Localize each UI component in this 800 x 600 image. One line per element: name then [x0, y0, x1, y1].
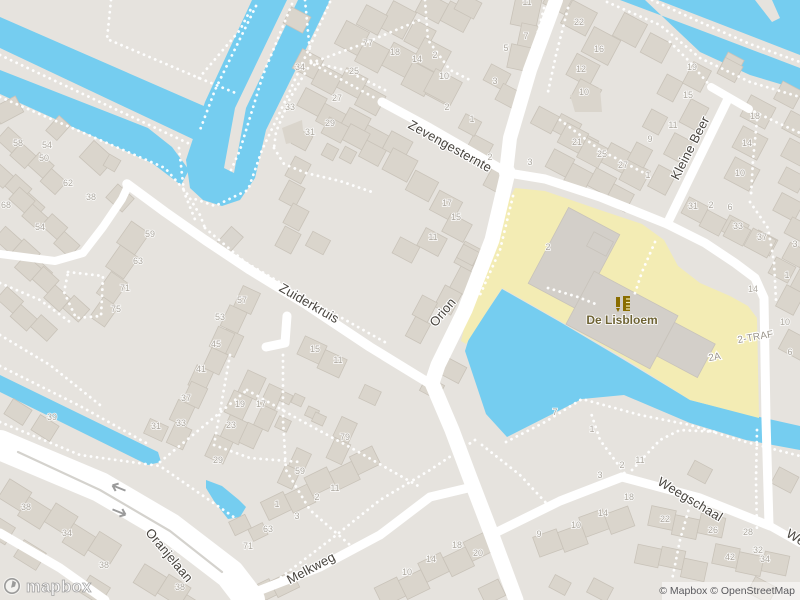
svg-text:34: 34 [62, 528, 72, 538]
svg-text:77: 77 [363, 38, 373, 48]
svg-text:79: 79 [340, 432, 350, 442]
svg-text:31: 31 [305, 127, 315, 137]
svg-text:59: 59 [145, 229, 155, 239]
svg-text:71: 71 [120, 283, 130, 293]
svg-text:33: 33 [176, 418, 186, 428]
svg-text:3: 3 [294, 511, 299, 521]
svg-text:10: 10 [439, 71, 449, 81]
svg-text:18: 18 [390, 47, 400, 57]
svg-text:38: 38 [86, 192, 96, 202]
svg-text:19: 19 [687, 62, 697, 72]
svg-text:De Lisbloem: De Lisbloem [586, 313, 657, 327]
svg-text:37: 37 [181, 393, 191, 403]
svg-text:11: 11 [635, 455, 644, 465]
svg-text:25: 25 [597, 149, 607, 159]
svg-text:7: 7 [523, 31, 528, 41]
svg-text:25: 25 [349, 66, 359, 76]
svg-text:38: 38 [99, 560, 109, 570]
svg-text:14: 14 [426, 554, 436, 564]
svg-text:7: 7 [552, 407, 557, 417]
svg-text:9: 9 [647, 134, 652, 144]
svg-text:26: 26 [708, 525, 718, 535]
svg-text:54: 54 [35, 222, 45, 232]
svg-text:1: 1 [645, 170, 650, 180]
svg-text:11: 11 [668, 120, 677, 130]
svg-text:53: 53 [215, 312, 225, 322]
svg-text:2: 2 [619, 460, 624, 470]
svg-text:37: 37 [757, 232, 767, 242]
svg-text:10: 10 [571, 520, 581, 530]
svg-text:9: 9 [536, 529, 541, 539]
svg-text:2A: 2A [708, 351, 722, 364]
svg-text:1: 1 [469, 114, 474, 124]
svg-text:1: 1 [589, 424, 594, 434]
svg-text:1: 1 [784, 270, 789, 280]
svg-text:11: 11 [428, 232, 437, 242]
svg-text:34: 34 [760, 554, 770, 564]
svg-text:71: 71 [243, 541, 253, 551]
svg-text:22: 22 [574, 17, 584, 27]
svg-text:3: 3 [527, 157, 532, 167]
svg-text:27: 27 [618, 160, 628, 170]
svg-text:19: 19 [235, 399, 245, 409]
svg-text:27: 27 [332, 93, 342, 103]
svg-text:23: 23 [226, 420, 236, 430]
svg-text:20: 20 [473, 548, 483, 558]
svg-text:2: 2 [708, 200, 713, 210]
svg-text:18: 18 [624, 492, 634, 502]
svg-text:31: 31 [688, 201, 698, 211]
svg-text:34: 34 [295, 62, 305, 72]
svg-text:39: 39 [47, 412, 57, 422]
svg-text:21: 21 [572, 137, 582, 147]
svg-text:3: 3 [792, 239, 797, 249]
svg-text:31: 31 [151, 421, 161, 431]
svg-text:10: 10 [735, 168, 745, 178]
svg-text:10: 10 [780, 317, 790, 327]
svg-text:© Mapbox © OpenStreetMap: © Mapbox © OpenStreetMap [659, 585, 795, 597]
svg-text:15: 15 [310, 344, 320, 354]
svg-text:63: 63 [133, 256, 143, 266]
svg-text:57: 57 [237, 295, 247, 305]
svg-text:29: 29 [213, 455, 223, 465]
svg-text:54: 54 [42, 140, 52, 150]
svg-text:17: 17 [256, 399, 266, 409]
svg-text:2: 2 [314, 492, 319, 502]
svg-text:mapbox: mapbox [26, 578, 92, 596]
svg-text:59: 59 [295, 466, 305, 476]
svg-text:10: 10 [402, 567, 412, 577]
svg-text:18: 18 [452, 540, 462, 550]
svg-text:12: 12 [576, 64, 586, 74]
svg-text:16: 16 [594, 44, 604, 54]
svg-text:50: 50 [39, 153, 49, 163]
svg-text:3: 3 [492, 76, 497, 86]
svg-text:45: 45 [211, 339, 221, 349]
svg-text:63: 63 [263, 524, 273, 534]
svg-text:68: 68 [1, 200, 11, 210]
svg-text:14: 14 [748, 284, 758, 294]
svg-text:11: 11 [522, 0, 531, 7]
svg-text:58: 58 [13, 138, 23, 148]
svg-text:28: 28 [743, 527, 753, 537]
svg-text:38: 38 [21, 502, 31, 512]
svg-text:62: 62 [63, 178, 73, 188]
svg-text:17: 17 [442, 198, 452, 208]
svg-text:15: 15 [451, 212, 461, 222]
svg-text:14: 14 [742, 138, 752, 148]
svg-text:42: 42 [725, 552, 735, 562]
svg-text:11: 11 [330, 483, 339, 493]
svg-text:15: 15 [683, 90, 693, 100]
svg-text:10: 10 [579, 87, 589, 97]
svg-text:75: 75 [111, 304, 121, 314]
svg-text:33: 33 [285, 102, 295, 112]
svg-text:22: 22 [660, 514, 670, 524]
svg-text:2: 2 [545, 242, 550, 252]
svg-text:11: 11 [333, 355, 342, 365]
svg-text:3: 3 [597, 470, 602, 480]
svg-text:18: 18 [750, 111, 760, 121]
svg-text:33: 33 [733, 221, 743, 231]
svg-text:41: 41 [196, 364, 206, 374]
svg-text:1: 1 [274, 499, 279, 509]
svg-text:6: 6 [727, 202, 732, 212]
svg-text:14: 14 [412, 54, 422, 64]
svg-text:5: 5 [503, 43, 508, 53]
svg-text:6: 6 [787, 347, 792, 357]
svg-text:29: 29 [325, 118, 335, 128]
svg-text:2: 2 [444, 102, 449, 112]
svg-text:2: 2 [432, 50, 437, 60]
svg-text:14: 14 [598, 508, 608, 518]
